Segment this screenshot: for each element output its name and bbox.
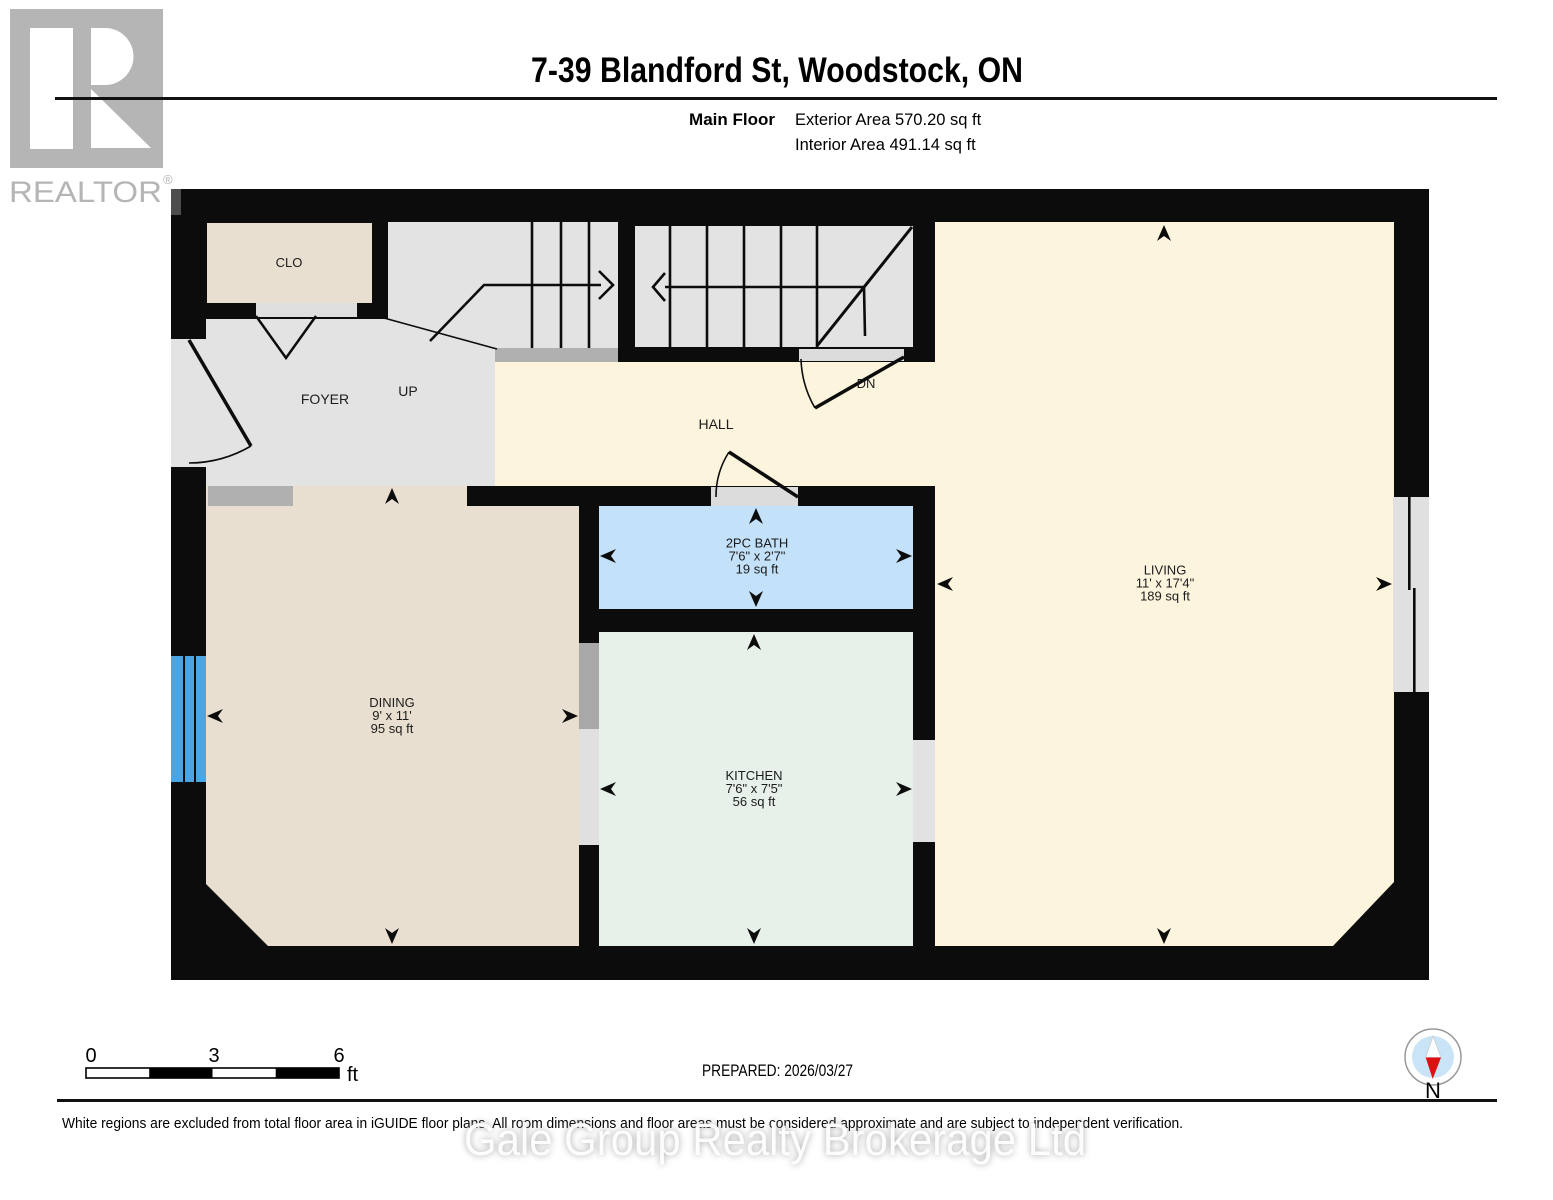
svg-text:Exterior Area 570.20 sq ft: Exterior Area 570.20 sq ft: [795, 111, 982, 129]
svg-text:3: 3: [208, 1045, 219, 1067]
svg-text:PREPARED: 2026/03/27: PREPARED: 2026/03/27: [702, 1062, 853, 1080]
svg-text:0: 0: [85, 1045, 96, 1067]
svg-text:19 sq ft: 19 sq ft: [736, 562, 779, 577]
svg-text:189 sq ft: 189 sq ft: [1140, 589, 1190, 604]
svg-text:ft: ft: [347, 1064, 359, 1086]
svg-text:FOYER: FOYER: [301, 391, 349, 407]
svg-text:REALTOR: REALTOR: [9, 176, 162, 209]
svg-text:6: 6: [333, 1045, 344, 1067]
svg-text:HALL: HALL: [698, 416, 733, 432]
svg-text:Interior Area 491.14 sq ft: Interior Area 491.14 sq ft: [795, 136, 976, 154]
svg-text:7-39 Blandford St, Woodstock,: 7-39 Blandford St, Woodstock, ON: [531, 51, 1023, 90]
svg-text:DN: DN: [857, 376, 876, 391]
svg-text:56 sq ft: 56 sq ft: [733, 794, 776, 809]
svg-text:CLO: CLO: [276, 255, 303, 270]
svg-text:95 sq ft: 95 sq ft: [371, 721, 414, 736]
svg-text:UP: UP: [398, 383, 417, 399]
svg-text:Main Floor: Main Floor: [689, 110, 775, 129]
svg-text:Gale Group Realty Brokerage Lt: Gale Group Realty Brokerage Ltd: [464, 1114, 1086, 1165]
svg-text:®: ®: [163, 172, 173, 187]
